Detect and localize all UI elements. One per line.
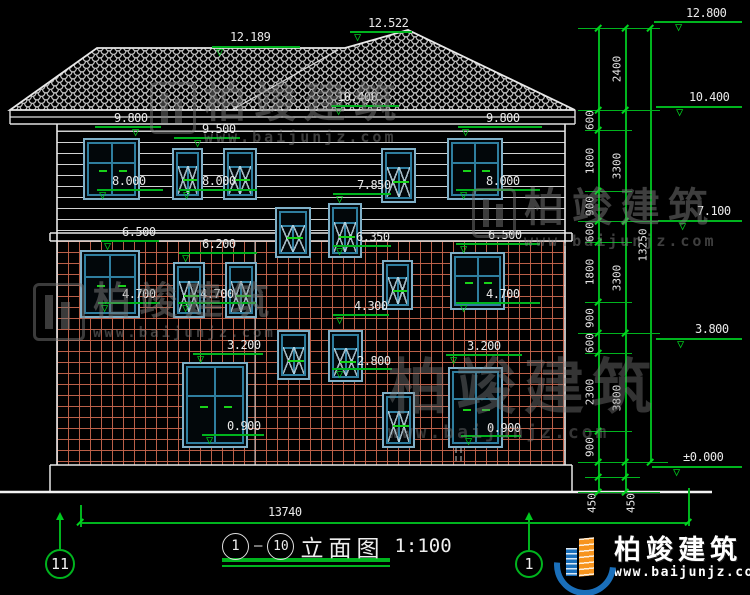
vent-mark — [399, 290, 407, 292]
level-value: 6.200 — [202, 237, 236, 251]
level-value: 10.400 — [337, 90, 377, 104]
window-frame — [386, 396, 411, 444]
vent-mark — [224, 406, 232, 408]
axis-bubble-right: 1 — [515, 550, 543, 578]
axis-bubble-left: 11 — [45, 549, 75, 579]
vent-mark — [393, 181, 401, 183]
level-triangle-icon: ▽ — [336, 369, 343, 379]
vent-mark — [99, 170, 107, 172]
level-triangle-icon: ▽ — [183, 190, 190, 200]
level-triangle-icon: ▽ — [132, 127, 139, 137]
level-value: 3.800 — [695, 322, 729, 336]
vent-mark — [484, 282, 492, 284]
chain-line — [650, 28, 652, 462]
level-triangle-icon: ▽ — [182, 253, 189, 263]
level-triangle-icon: ▽ — [336, 194, 343, 204]
level-triangle-icon: ▽ — [197, 354, 204, 364]
window-frame — [279, 211, 307, 254]
level-triangle-icon: ▽ — [101, 303, 108, 313]
level-triangle-icon: ▽ — [194, 138, 201, 148]
level-line — [458, 126, 542, 128]
level-value: 8.000 — [112, 174, 146, 188]
level-triangle-icon: ▽ — [679, 221, 686, 231]
chain-tick — [585, 353, 632, 354]
vent-mark — [119, 170, 127, 172]
level-value: 7.850 — [357, 178, 391, 192]
window — [381, 148, 416, 203]
level-triangle-icon: ▽ — [462, 127, 469, 137]
chain-tick — [585, 302, 632, 303]
chain-dim-value: 900 — [584, 196, 597, 216]
chain-dim-value: 3300 — [611, 265, 624, 292]
axis-range-dash: — — [254, 538, 262, 554]
level-value: 8.000 — [202, 174, 236, 188]
vent-mark — [482, 170, 490, 172]
chain-tick — [585, 242, 632, 243]
level-value: 6.350 — [356, 230, 390, 244]
level-triangle-icon: ▽ — [677, 339, 684, 349]
level-line — [654, 21, 742, 23]
axis-start-circle: 1 — [222, 533, 249, 560]
level-line — [652, 466, 742, 468]
level-value: ±0.000 — [683, 450, 723, 464]
level-value: 4.700 — [122, 287, 156, 301]
chain-dim-value: 900 — [584, 308, 597, 328]
brand-logo: 柏竣建筑 www.baijunjz.com — [552, 524, 750, 592]
chain-dim-value: 2400 — [611, 56, 624, 83]
brand-logo-icon — [552, 528, 610, 588]
level-triangle-icon: ▽ — [460, 244, 467, 254]
level-line — [656, 106, 742, 108]
title-text: 立面图 — [300, 529, 384, 563]
level-line — [212, 46, 300, 48]
level-value: 9.800 — [486, 111, 520, 125]
axis-arrow-left — [56, 512, 64, 520]
level-triangle-icon: ▽ — [354, 32, 361, 42]
level-triangle-icon: ▽ — [460, 303, 467, 313]
window — [80, 250, 140, 318]
level-value: 6.500 — [122, 225, 156, 239]
level-triangle-icon: ▽ — [336, 315, 343, 325]
window-frame — [386, 264, 409, 306]
chain-dim-value: 13250 — [637, 228, 650, 261]
level-value: 9.800 — [114, 111, 148, 125]
chain-dim-value: 1800 — [584, 148, 597, 175]
level-triangle-icon: ▽ — [460, 190, 467, 200]
vent-mark — [339, 236, 347, 238]
vent-mark — [296, 360, 304, 362]
level-line — [456, 302, 540, 304]
vent-mark — [191, 295, 199, 297]
level-line — [179, 252, 257, 254]
roof-hip-line — [232, 50, 338, 110]
chain-dim-value: 2300 — [584, 379, 597, 406]
vent-mark — [200, 406, 208, 408]
bottom-dim-ext — [80, 505, 82, 527]
axis-leader-left — [59, 517, 61, 549]
level-value: 4.700 — [200, 287, 234, 301]
window — [277, 330, 310, 380]
vent-mark — [287, 237, 295, 239]
level-triangle-icon: ▽ — [335, 106, 342, 116]
chain-tick — [585, 431, 632, 432]
level-value: 0.900 — [227, 419, 261, 433]
level-value: 10.400 — [689, 90, 729, 104]
level-line — [456, 189, 540, 191]
vent-mark — [401, 181, 409, 183]
level-line — [97, 189, 163, 191]
level-line — [656, 338, 742, 340]
level-value: 4.700 — [486, 287, 520, 301]
level-line — [174, 137, 240, 139]
level-value: 12.189 — [230, 30, 270, 44]
chain-dim-value: 450 — [586, 493, 599, 513]
level-triangle-icon: ▽ — [182, 303, 189, 313]
chain-dim-value: 900 — [584, 437, 597, 457]
vent-mark — [189, 179, 197, 181]
vent-mark — [347, 236, 355, 238]
level-triangle-icon: ▽ — [206, 435, 213, 445]
level-triangle-icon: ▽ — [336, 246, 343, 256]
level-line — [95, 126, 161, 128]
chain-dim-value: 600 — [584, 222, 597, 242]
vent-mark — [482, 409, 490, 411]
overall-width-dim: 13740 — [268, 505, 302, 519]
level-triangle-icon: ▽ — [99, 190, 106, 200]
brand-name: 柏竣建筑 — [614, 536, 750, 566]
chain-line — [598, 28, 600, 492]
title-underline-thin — [222, 565, 390, 567]
level-triangle-icon: ▽ — [673, 467, 680, 477]
window-frame — [281, 334, 306, 376]
vent-mark — [242, 179, 250, 181]
vent-mark — [465, 282, 473, 284]
level-triangle-icon: ▽ — [676, 107, 683, 117]
chain-dim-value: 3800 — [611, 385, 624, 412]
vent-mark — [340, 361, 348, 363]
window — [382, 392, 415, 448]
vent-mark — [463, 409, 471, 411]
level-value: 9.500 — [202, 122, 236, 136]
window — [275, 207, 311, 258]
chain-dim-value: 450 — [625, 493, 638, 513]
level-value: 3.200 — [467, 339, 501, 353]
level-value: 7.100 — [697, 204, 731, 218]
level-value: 6.500 — [488, 228, 522, 242]
axis-arrow-right — [525, 512, 533, 520]
chain-dim-value: 1800 — [584, 259, 597, 286]
level-triangle-icon: ▽ — [465, 436, 472, 446]
chain-dim-value: 3300 — [611, 153, 624, 180]
window — [447, 138, 503, 200]
chain-tick — [585, 191, 632, 192]
level-triangle-icon: ▽ — [450, 355, 457, 365]
level-value: 0.900 — [487, 421, 521, 435]
level-value: 12.800 — [686, 6, 726, 20]
level-line — [179, 189, 257, 191]
vent-mark — [97, 285, 105, 287]
roof-outline — [10, 30, 575, 110]
title-scale: 1:100 — [394, 535, 451, 557]
level-line — [456, 243, 540, 245]
level-value: 3.200 — [227, 338, 261, 352]
vent-mark — [348, 361, 356, 363]
level-line — [178, 302, 256, 304]
window — [83, 138, 140, 200]
elevation-drawing: 1 — 10 立面图 1:100 13740 11 1 柏竣建筑 www.bai… — [0, 0, 750, 595]
brand-url: www.baijunjz.com — [614, 565, 750, 580]
level-value: 4.300 — [354, 299, 388, 313]
vent-mark — [295, 237, 303, 239]
level-line — [658, 220, 742, 222]
level-value: 8.000 — [486, 174, 520, 188]
level-triangle-icon: ▽ — [216, 47, 223, 57]
level-triangle-icon: ▽ — [104, 241, 111, 251]
level-value: 12.522 — [368, 16, 408, 30]
chain-tick — [585, 130, 632, 131]
level-value: 2.800 — [357, 354, 391, 368]
vent-mark — [463, 170, 471, 172]
drawing-title: 1 — 10 立面图 1:100 — [222, 529, 452, 563]
window-frame — [84, 254, 136, 314]
chain-tick — [585, 477, 640, 478]
level-line — [446, 354, 522, 356]
axis-end-circle: 10 — [267, 533, 294, 560]
level-triangle-icon: ▽ — [675, 22, 682, 32]
chain-line — [625, 28, 627, 492]
vent-mark — [243, 295, 251, 297]
vent-mark — [401, 425, 409, 427]
